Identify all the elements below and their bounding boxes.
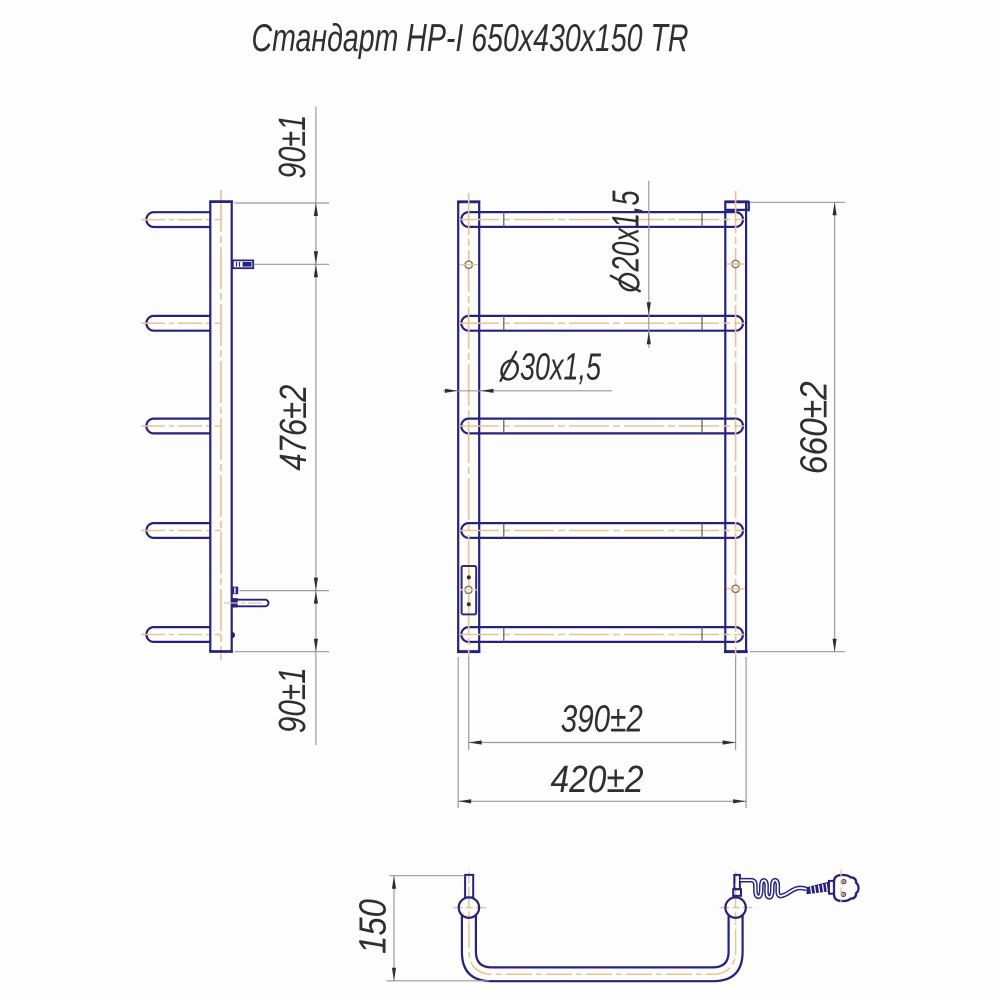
svg-text:420±2: 420±2 — [551, 759, 644, 801]
svg-text:90±1: 90±1 — [272, 115, 314, 179]
svg-text:150: 150 — [353, 899, 395, 954]
svg-text:90±1: 90±1 — [272, 667, 314, 733]
svg-text:30х1,5: 30х1,5 — [520, 347, 602, 389]
svg-text:Стандарт НР-І 650х430х150 TR: Стандарт НР-І 650х430х150 TR — [252, 17, 689, 60]
svg-text:20х1,5: 20х1,5 — [606, 190, 648, 272]
svg-text:476±2: 476±2 — [273, 385, 315, 471]
svg-text:660±2: 660±2 — [794, 381, 836, 474]
svg-text:390±2: 390±2 — [561, 699, 643, 741]
